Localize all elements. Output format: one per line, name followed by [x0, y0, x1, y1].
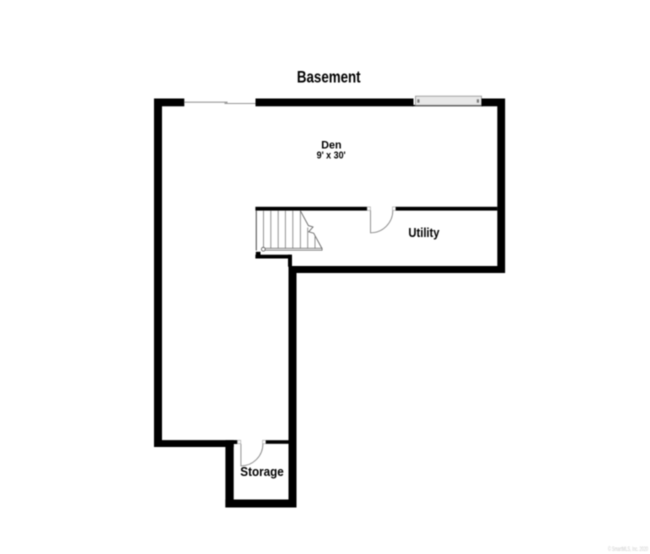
svg-text:Den: Den — [321, 139, 341, 151]
svg-text:Utility: Utility — [408, 225, 440, 240]
svg-text:© SmartMLS, Inc. 2020: © SmartMLS, Inc. 2020 — [608, 545, 648, 553]
svg-text:Basement: Basement — [297, 69, 361, 87]
svg-text:Storage: Storage — [240, 464, 283, 479]
svg-text:9' x 30': 9' x 30' — [317, 151, 346, 162]
